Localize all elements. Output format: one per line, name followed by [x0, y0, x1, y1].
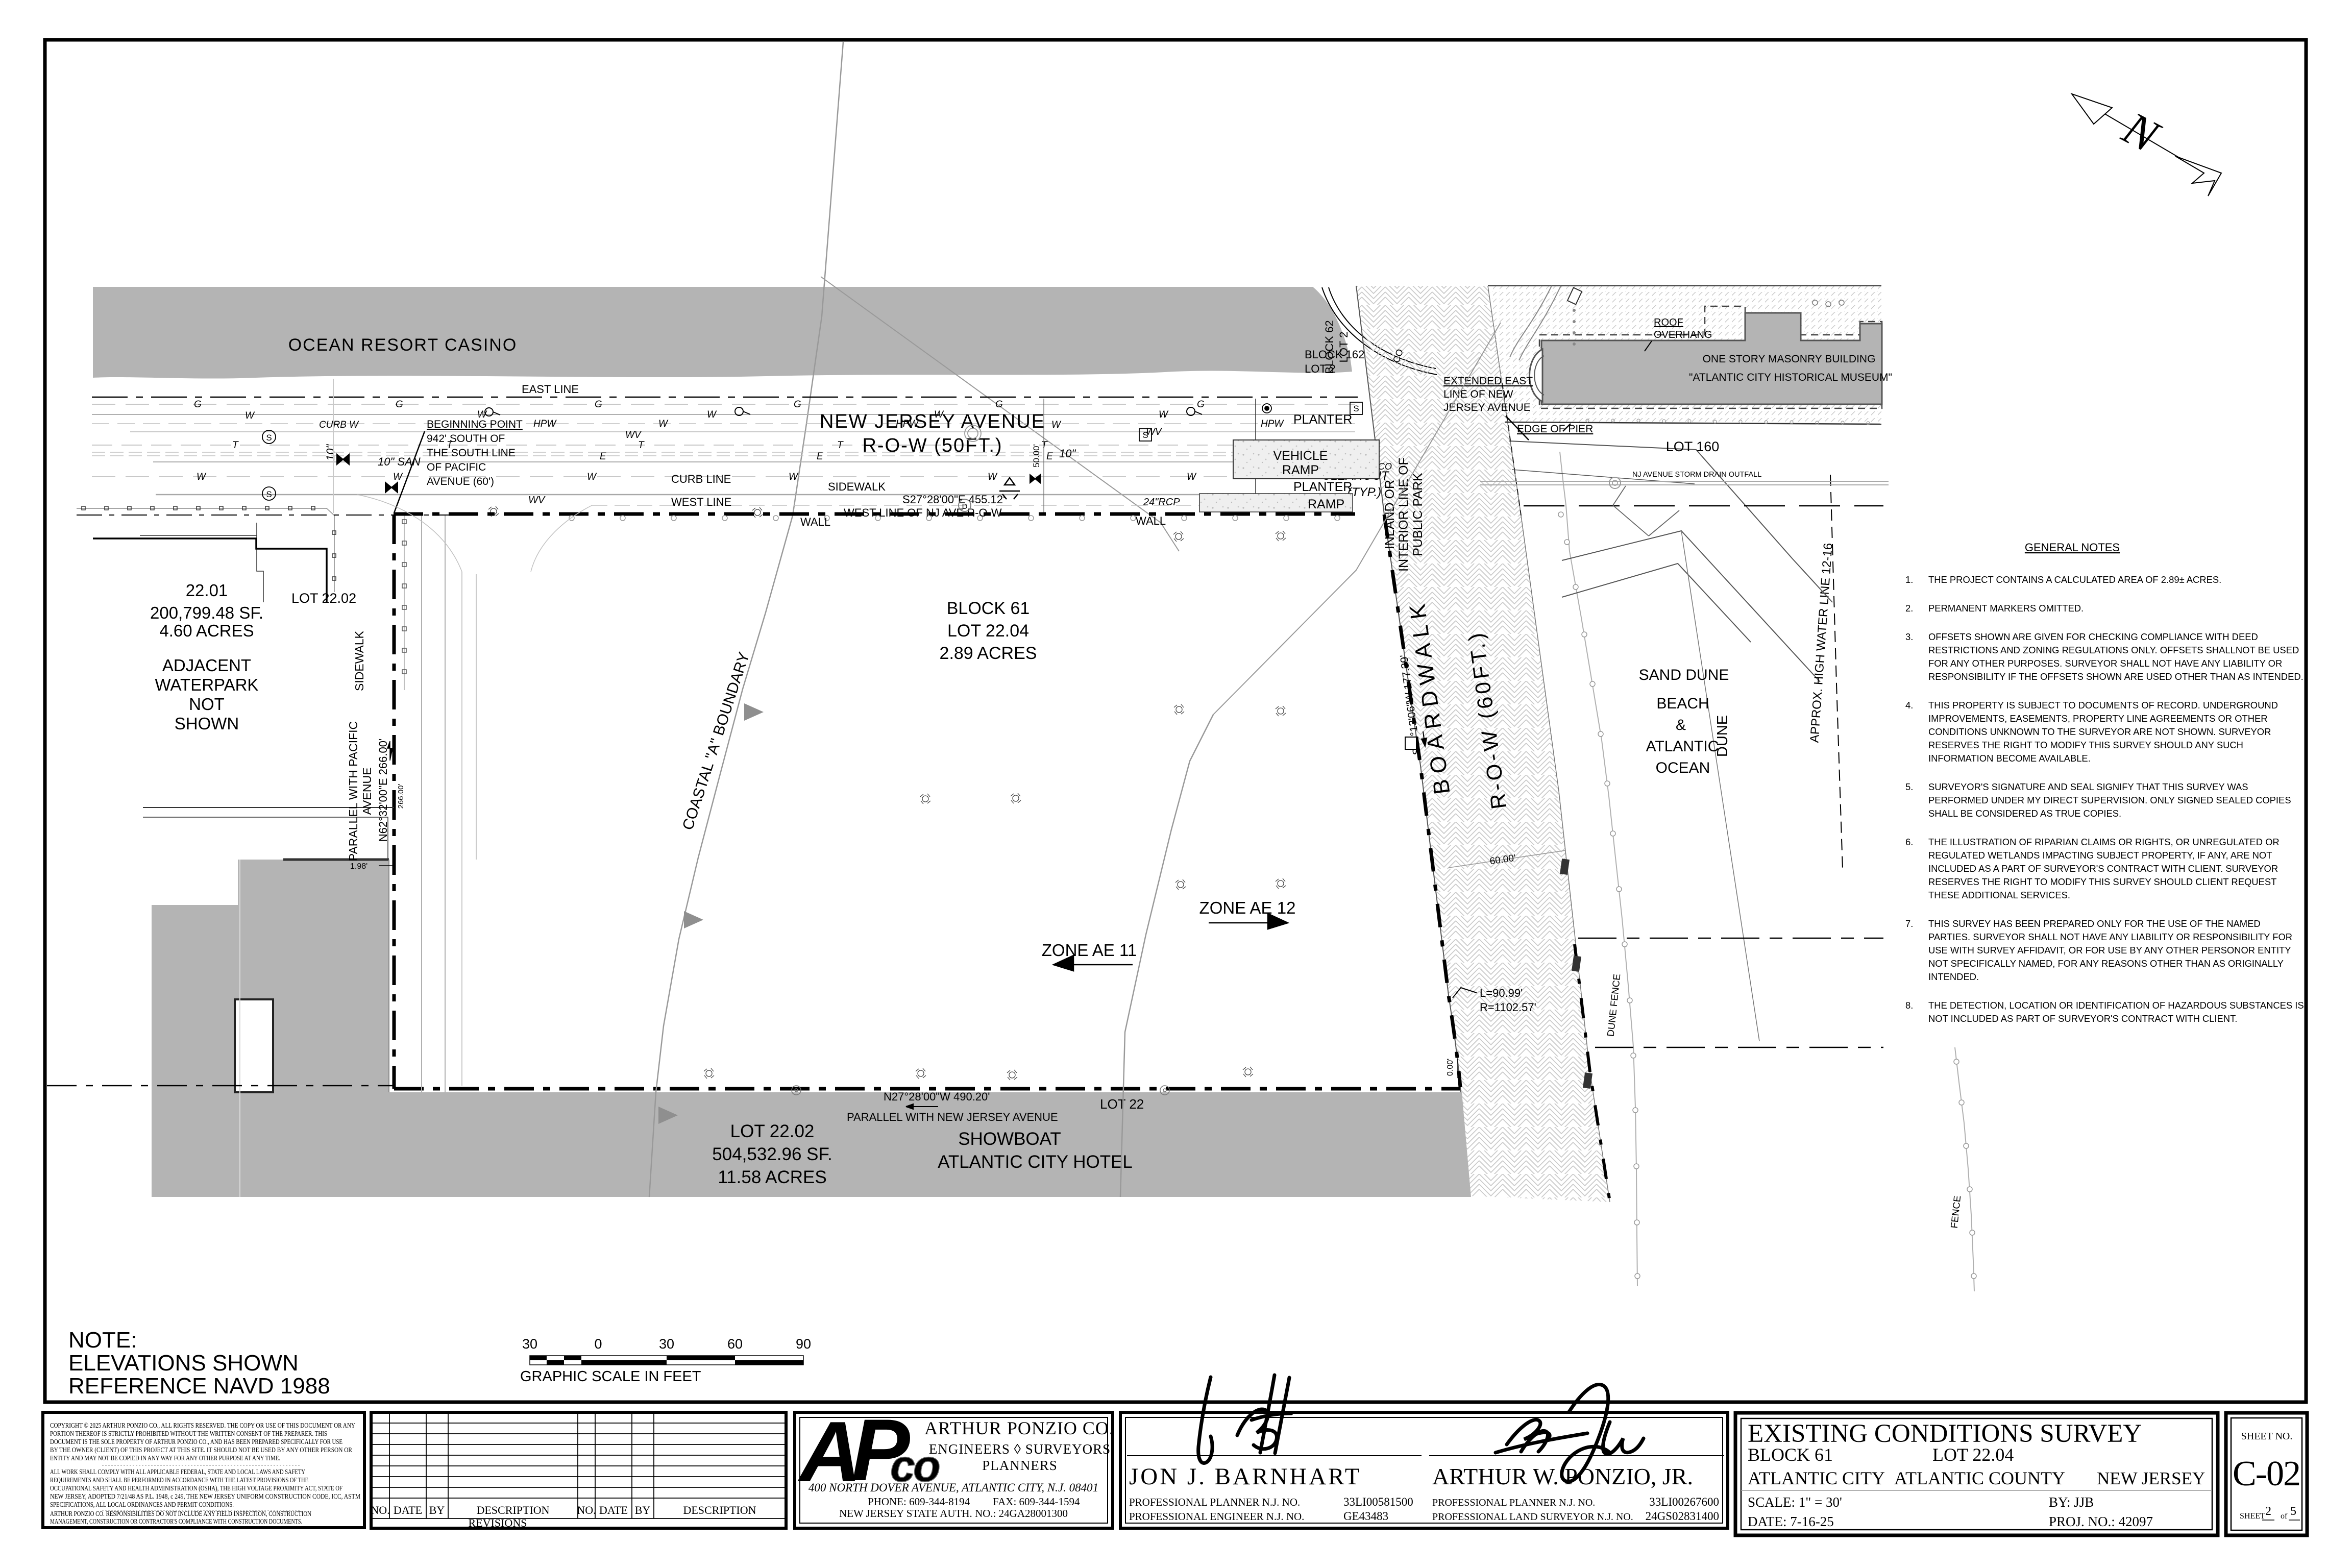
svg-text:NEW JERSEY AVENUE: NEW JERSEY AVENUE: [820, 411, 1045, 432]
svg-text:ZONE AE 12: ZONE AE 12: [1199, 898, 1296, 917]
svg-text:SHEET NO.: SHEET NO.: [2241, 1431, 2293, 1442]
svg-text:PROFESSIONAL ENGINEER N.J. NO.: PROFESSIONAL ENGINEER N.J. NO.: [1129, 1510, 1304, 1523]
svg-text:942' SOUTH OF: 942' SOUTH OF: [427, 433, 505, 445]
svg-text:NEW JERSEY, ADOPTED 7/21/48 AS: NEW JERSEY, ADOPTED 7/21/48 AS P.L. 1948…: [50, 1492, 360, 1500]
svg-text:OCEAN RESORT CASINO: OCEAN RESORT CASINO: [288, 335, 518, 355]
svg-text:FAX: 609-344-1594: FAX: 609-344-1594: [993, 1496, 1080, 1508]
svg-text:NOT: NOT: [189, 695, 225, 714]
svg-text:10": 10": [324, 444, 337, 461]
svg-text:8.: 8.: [1905, 1000, 1913, 1011]
svg-text:W: W: [1187, 472, 1197, 482]
svg-text:400 NORTH DOVER AVENUE, ATLANT: 400 NORTH DOVER AVENUE, ATLANTIC CITY, N…: [808, 1481, 1098, 1494]
svg-text:VEHICLE: VEHICLE: [1273, 449, 1328, 463]
svg-text:FOR ANY OTHER PURPOSES. SURVEY: FOR ANY OTHER PURPOSES. SURVEYOR SHALL N…: [1928, 658, 2282, 669]
svg-text:ENTITY AND MAY NOT BE COPIED I: ENTITY AND MAY NOT BE COPIED IN ANY WAY …: [50, 1454, 280, 1462]
svg-text:7.: 7.: [1905, 918, 1913, 929]
svg-text:CURB LINE: CURB LINE: [671, 473, 731, 485]
svg-text:2.89 ACRES: 2.89 ACRES: [940, 644, 1037, 663]
svg-text:PORTION THEREOF IS STRICTLY PR: PORTION THEREOF IS STRICTLY PROHIBITED W…: [50, 1430, 327, 1437]
svg-text:CO: CO: [1378, 461, 1392, 472]
svg-text:4.60 ACRES: 4.60 ACRES: [159, 621, 254, 640]
svg-text:GENERAL NOTES: GENERAL NOTES: [2025, 541, 2120, 554]
svg-text:PROJ. NO.: 42097: PROJ. NO.: 42097: [2049, 1514, 2153, 1529]
svg-text:PUBLIC PARK: PUBLIC PARK: [1411, 473, 1425, 556]
svg-text:PROFESSIONAL PLANNER N.J. NO.: PROFESSIONAL PLANNER N.J. NO.: [1129, 1496, 1300, 1508]
svg-text:30: 30: [659, 1336, 674, 1352]
svg-text:10" SAN: 10" SAN: [378, 455, 421, 468]
svg-text:BY: BY: [429, 1504, 445, 1516]
svg-text:JON J. BARNHART: JON J. BARNHART: [1129, 1463, 1361, 1490]
svg-text:SHOWN: SHOWN: [175, 714, 239, 733]
svg-text:WALL: WALL: [800, 516, 830, 528]
svg-text:T: T: [232, 440, 239, 451]
svg-text:"ATLANTIC CITY HISTORICAL MUSE: "ATLANTIC CITY HISTORICAL MUSEUM": [1689, 372, 1892, 383]
svg-text:G: G: [194, 399, 202, 410]
svg-text:HPW: HPW: [533, 419, 557, 429]
svg-text:S27°28'00"E 455.12': S27°28'00"E 455.12': [902, 493, 1005, 506]
svg-text:THE PROJECT CONTAINS A CALCUL: THE PROJECT CONTAINS A CALCULATED AREA O…: [1928, 574, 2221, 585]
svg-text:OFFSETS SHOWN ARE GIVEN FOR CH: OFFSETS SHOWN ARE GIVEN FOR CHECKING COM…: [1928, 631, 2258, 642]
svg-text:DESCRIPTION: DESCRIPTION: [683, 1504, 756, 1516]
svg-text:10": 10": [1059, 447, 1076, 460]
svg-text:SCALE: 1" = 30': SCALE: 1" = 30': [1748, 1494, 1842, 1510]
svg-text:W: W: [587, 472, 597, 482]
svg-text:30: 30: [522, 1336, 537, 1352]
svg-text:W: W: [197, 472, 207, 482]
svg-text:ARTHUR W. PONZIO, JR.: ARTHUR W. PONZIO, JR.: [1432, 1463, 1693, 1489]
svg-text:S: S: [266, 433, 272, 443]
svg-text:RAMP: RAMP: [1282, 463, 1319, 477]
svg-text:E: E: [817, 451, 823, 462]
svg-text:RESERVES THE RIGHT TO MODIFY T: RESERVES THE RIGHT TO MODIFY THIS SURVEY…: [1928, 740, 2243, 750]
svg-text:ROOF: ROOF: [1654, 317, 1683, 328]
svg-text:ALL WORK SHALL COMPLY WITH ALL: ALL WORK SHALL COMPLY WITH ALL APPLICABL…: [50, 1468, 305, 1476]
svg-text:GE43483: GE43483: [1343, 1510, 1388, 1523]
svg-text:NO.: NO.: [371, 1504, 389, 1516]
svg-text:BY: JJB: BY: JJB: [2049, 1494, 2094, 1510]
svg-text:ENGINEERS ◊ SURVEYORS: ENGINEERS ◊ SURVEYORS: [929, 1441, 1111, 1457]
svg-text:NEW JERSEY STATE AUTH. NO.: 2: NEW JERSEY STATE AUTH. NO.: 24GA28001300: [839, 1507, 1068, 1520]
svg-text:PLANNERS: PLANNERS: [982, 1458, 1058, 1473]
svg-text:CONDITIONS UNKNOWN TO THE SURV: CONDITIONS UNKNOWN TO THE SURVEYOR ARE N…: [1928, 726, 2271, 737]
svg-text:SHEET: SHEET: [2240, 1512, 2265, 1521]
svg-text:N62°32'00"E 266.00': N62°32'00"E 266.00': [377, 739, 389, 842]
svg-text:DATE: DATE: [394, 1504, 422, 1516]
svg-text:INTERIOR LINE OF: INTERIOR LINE OF: [1396, 457, 1411, 572]
svg-text:EXISTING CONDITIONS SURVEY: EXISTING CONDITIONS SURVEY: [1748, 1419, 2142, 1448]
svg-text:NO.: NO.: [577, 1504, 596, 1516]
svg-text:AVENUE: AVENUE: [360, 768, 374, 815]
svg-text:S: S: [266, 489, 272, 499]
svg-text:IMPROVEMENTS, EASEMENTS, PROPE: IMPROVEMENTS, EASEMENTS, PROPERTY LINE A…: [1928, 713, 2268, 724]
svg-text:3.: 3.: [1905, 631, 1913, 642]
svg-text:THIS PROPERTY IS SUBJECT TO DO: THIS PROPERTY IS SUBJECT TO DOCUMENTS OF…: [1928, 700, 2278, 710]
svg-text:2.: 2.: [1905, 603, 1913, 614]
svg-text:RAMP: RAMP: [1308, 497, 1344, 511]
svg-text:INLAND OR: INLAND OR: [1383, 480, 1397, 549]
svg-text:R=1102.57': R=1102.57': [1480, 1001, 1536, 1014]
svg-text:W: W: [789, 472, 799, 482]
svg-text:WV: WV: [528, 495, 546, 506]
svg-text:LOT 160: LOT 160: [1666, 439, 1720, 454]
svg-text:ADJACENT: ADJACENT: [162, 656, 251, 675]
svg-text:THE DETECTION, LOCATION OR IDE: THE DETECTION, LOCATION OR IDENTIFICATIO…: [1928, 1000, 2304, 1011]
svg-text:PARALLEL WITH PACIFIC: PARALLEL WITH PACIFIC: [347, 721, 360, 861]
svg-text:BEACH: BEACH: [1656, 695, 1709, 712]
svg-text:G: G: [595, 399, 602, 410]
svg-text:BLOCK 162: BLOCK 162: [1305, 348, 1364, 361]
svg-text:LOT 22: LOT 22: [1100, 1096, 1144, 1112]
svg-text:0: 0: [594, 1336, 602, 1352]
svg-text:PHONE: 609-344-8194: PHONE: 609-344-8194: [868, 1496, 970, 1508]
svg-text:E: E: [1046, 451, 1053, 462]
svg-text:60: 60: [727, 1336, 743, 1352]
svg-text:USE WITH SURVEY AFFIDAVIT, OR: USE WITH SURVEY AFFIDAVIT, OR FOR USE BY…: [1928, 945, 2291, 955]
svg-text:22.01: 22.01: [186, 581, 228, 600]
svg-text:T: T: [638, 440, 645, 451]
svg-text:5: 5: [2290, 1505, 2296, 1518]
svg-text:ELEVATIONS SHOWN: ELEVATIONS SHOWN: [68, 1351, 299, 1376]
svg-text:0.00': 0.00': [1446, 1059, 1455, 1076]
svg-text:AVENUE (60'): AVENUE (60'): [427, 476, 494, 487]
svg-text:OF PACIFIC: OF PACIFIC: [427, 461, 486, 473]
svg-text:ARTHUR PONZIO CO. RESPONSIBILI: ARTHUR PONZIO CO. RESPONSIBILITIES DO NO…: [50, 1510, 311, 1517]
svg-text:R-O-W (50FT.): R-O-W (50FT.): [862, 435, 1002, 456]
svg-text:G: G: [396, 399, 403, 410]
svg-text:ATLANTIC COUNTY: ATLANTIC COUNTY: [1894, 1468, 2065, 1488]
svg-text:T: T: [837, 440, 844, 451]
svg-text:D: D: [962, 502, 968, 511]
svg-text:W: W: [988, 472, 998, 482]
svg-text:SIDEWALK: SIDEWALK: [828, 480, 886, 493]
svg-text:LOT 22.02: LOT 22.02: [291, 591, 356, 606]
svg-text:90: 90: [796, 1336, 811, 1352]
svg-text:G: G: [1197, 399, 1205, 410]
svg-text:DATE: 7-16-25: DATE: 7-16-25: [1748, 1514, 1834, 1529]
svg-text:L=90.99': L=90.99': [1480, 987, 1523, 999]
svg-text:PLANTER: PLANTER: [1293, 480, 1352, 494]
svg-text:WEST LINE: WEST LINE: [671, 496, 731, 508]
svg-text:504,532.96 SF.: 504,532.96 SF.: [712, 1144, 832, 1164]
svg-text:of: of: [2281, 1512, 2288, 1521]
svg-text:W: W: [707, 409, 717, 420]
svg-text:ATLANTIC: ATLANTIC: [1646, 738, 1719, 755]
svg-text:LINE OF NEW: LINE OF NEW: [1443, 388, 1513, 400]
svg-text:THESE ADDITIONAL SERVICES.: THESE ADDITIONAL SERVICES.: [1928, 890, 2070, 900]
svg-text:NJ AVENUE STORM DRAIN OUTFALL: NJ AVENUE STORM DRAIN OUTFALL: [1632, 471, 1761, 479]
svg-text:NEW JERSEY: NEW JERSEY: [2097, 1468, 2205, 1488]
svg-text:ARTHUR PONZIO CO.: ARTHUR PONZIO CO.: [924, 1418, 1114, 1438]
svg-text:2: 2: [2265, 1505, 2271, 1518]
svg-text:W: W: [658, 419, 669, 429]
svg-text:1.: 1.: [1905, 574, 1913, 585]
svg-text:PERMANENT MARKERS OMITTED.: PERMANENT MARKERS OMITTED.: [1928, 603, 2084, 614]
svg-text:ZONE AE 11: ZONE AE 11: [1042, 941, 1137, 960]
svg-text:WALL: WALL: [1136, 514, 1166, 527]
svg-text:G: G: [995, 399, 1003, 410]
svg-text:ATLANTIC CITY: ATLANTIC CITY: [1748, 1468, 1885, 1488]
svg-text:PROFESSIONAL PLANNER N.J. NO.: PROFESSIONAL PLANNER N.J. NO.: [1432, 1497, 1595, 1508]
svg-text:SURVEYOR'S SIGNATURE AND SEAL: SURVEYOR'S SIGNATURE AND SEAL SIGNIFY TH…: [1928, 781, 2248, 792]
svg-text:COPYRIGHT © 2025 ARTHUR PONZI: COPYRIGHT © 2025 ARTHUR PONZIO CO., ALL …: [50, 1422, 355, 1429]
svg-text:INCLUDED AS A PART OF SURVEYOR: INCLUDED AS A PART OF SURVEYOR'S CONTRAC…: [1928, 863, 2278, 874]
svg-text:HPW: HPW: [1261, 419, 1284, 429]
svg-text:&: &: [1676, 717, 1686, 733]
svg-text:JERSEY AVENUE: JERSEY AVENUE: [1443, 402, 1531, 413]
svg-text:4.: 4.: [1905, 700, 1913, 710]
svg-text:GRAPHIC SCALE IN FEET: GRAPHIC SCALE IN FEET: [520, 1368, 701, 1385]
svg-text:LOT 2: LOT 2: [1305, 362, 1336, 375]
svg-text:OVERHANG: OVERHANG: [1654, 329, 1712, 340]
svg-text:NOT SPECIFICALLY NAMED, FOR AN: NOT SPECIFICALLY NAMED, FOR ANY REASONS …: [1928, 958, 2284, 969]
svg-text:SHALL BE CONSIDERED AS TRUE CO: SHALL BE CONSIDERED AS TRUE COPIES.: [1928, 808, 2121, 819]
svg-text:DOCUMENT IS THE SOLE PROPERTY: DOCUMENT IS THE SOLE PROPERTY OF ARTHUR …: [50, 1438, 342, 1445]
svg-text:C-02: C-02: [2233, 1454, 2300, 1493]
svg-text:BEGINNING POINT: BEGINNING POINT: [427, 419, 523, 430]
svg-text:SHOWBOAT: SHOWBOAT: [958, 1129, 1061, 1149]
svg-text:OCEAN: OCEAN: [1656, 759, 1710, 776]
svg-text:MANAGEMENT, CONSTRUCTION OR C: MANAGEMENT, CONSTRUCTION OR CONTRACTOR'S…: [50, 1517, 302, 1525]
svg-text:DESCRIPTION: DESCRIPTION: [476, 1504, 549, 1516]
svg-text:W: W: [393, 472, 403, 482]
svg-text:BLOCK 61: BLOCK 61: [947, 599, 1030, 618]
svg-text:EXTENDED EAST: EXTENDED EAST: [1443, 375, 1533, 387]
svg-text:N27°28'00"W 490.20': N27°28'00"W 490.20': [884, 1090, 990, 1103]
svg-text:NOTE:: NOTE:: [68, 1328, 137, 1353]
svg-text:W: W: [1159, 409, 1169, 420]
svg-text:THIS SURVEY HAS BEEN PREPARED: THIS SURVEY HAS BEEN PREPARED ONLY FOR T…: [1928, 918, 2261, 929]
svg-text:LOT 22.04: LOT 22.04: [1932, 1444, 2014, 1465]
svg-text:PERFORMED UNDER MY DIRECT SUPE: PERFORMED UNDER MY DIRECT SUPERVISION. O…: [1928, 795, 2291, 805]
svg-text:WEST LINE OF NJ AVE R-O-W: WEST LINE OF NJ AVE R-O-W: [844, 506, 1002, 519]
svg-text:NOT INCLUDED AS PART OF SURVEY: NOT INCLUDED AS PART OF SURVEYOR'S CONTR…: [1928, 1013, 2237, 1024]
svg-text:REFERENCE NAVD 1988: REFERENCE NAVD 1988: [68, 1374, 330, 1399]
svg-text:PLANTER: PLANTER: [1293, 412, 1352, 427]
svg-text:50.00': 50.00': [1032, 444, 1041, 468]
svg-text:PARTIES. SURVEYOR SHALL NOT HA: PARTIES. SURVEYOR SHALL NOT HAVE ANY LIA…: [1928, 932, 2292, 942]
svg-text:BY THE OWNER (CLIENT) OF THIS: BY THE OWNER (CLIENT) OF THIS PROJECT AT…: [50, 1446, 352, 1454]
svg-text:T: T: [1041, 440, 1048, 451]
svg-text:LOT 22.04: LOT 22.04: [947, 621, 1029, 641]
svg-text:6.: 6.: [1905, 837, 1913, 847]
svg-text:ONE STORY MASONRY BUILDING: ONE STORY MASONRY BUILDING: [1703, 353, 1876, 365]
svg-text:W: W: [1051, 420, 1062, 430]
svg-text:DATE: DATE: [599, 1504, 628, 1516]
svg-text:SIDEWALK: SIDEWALK: [353, 630, 366, 691]
svg-text:RESTRICTIONS AND ZONING REGULA: RESTRICTIONS AND ZONING REGULATIONS ONLY…: [1928, 645, 2299, 655]
svg-text:REVISIONS: REVISIONS: [469, 1516, 527, 1529]
svg-text:INFORMATION BECOME AVAILABLE.: INFORMATION BECOME AVAILABLE.: [1928, 753, 2091, 764]
svg-text:SPECIFICATIONS, ALL LOCAL ORDI: SPECIFICATIONS, ALL LOCAL ORDINANCES AND…: [50, 1501, 234, 1508]
svg-text:RESPONSIBILITY IF THE OFFSETS: RESPONSIBILITY IF THE OFFSETS SHOWN ARE …: [1928, 671, 2304, 682]
svg-text:24"RCP: 24"RCP: [1143, 497, 1180, 508]
svg-text:33LI00267600: 33LI00267600: [1649, 1496, 1719, 1508]
svg-text:REQUIREMENTS AND SHALL BE PERF: REQUIREMENTS AND SHALL BE PERFORMED IN A…: [50, 1476, 308, 1484]
svg-text:LOT 22.02: LOT 22.02: [730, 1121, 815, 1141]
svg-text:E: E: [600, 451, 606, 462]
svg-text:SAND DUNE: SAND DUNE: [1639, 667, 1729, 683]
svg-text:EDGE OF PIER: EDGE OF PIER: [1517, 423, 1593, 435]
svg-text:W: W: [245, 410, 255, 421]
svg-text:33LI00581500: 33LI00581500: [1343, 1496, 1413, 1508]
svg-text:266.00': 266.00': [397, 783, 405, 808]
svg-text:DUNE: DUNE: [1714, 715, 1731, 757]
svg-text:24GS02831400: 24GS02831400: [1646, 1510, 1719, 1523]
svg-text:PROFESSIONAL LAND SURVEYOR N.J: PROFESSIONAL LAND SURVEYOR N.J. NO.: [1432, 1511, 1633, 1523]
svg-text:EAST LINE: EAST LINE: [522, 383, 579, 396]
svg-text:5.: 5.: [1905, 781, 1913, 792]
svg-text:BY: BY: [635, 1504, 651, 1516]
svg-text:OCCUPATIONAL SAFETY AND HEALTH: OCCUPATIONAL SAFETY AND HEALTH ADMINISTR…: [50, 1484, 342, 1492]
svg-text:WATERPARK: WATERPARK: [155, 675, 259, 694]
svg-text:THE ILLUSTRATION OF RIPARIAN C: THE ILLUSTRATION OF RIPARIAN CLAIMS OR R…: [1928, 837, 2280, 847]
svg-text:S: S: [1142, 430, 1148, 440]
svg-text:WV: WV: [625, 430, 642, 440]
svg-text:INTENDED.: INTENDED.: [1928, 971, 1979, 982]
svg-text:G: G: [794, 399, 801, 410]
svg-text:ATLANTIC CITY HOTEL: ATLANTIC CITY HOTEL: [938, 1152, 1133, 1172]
svg-text:PARALLEL WITH NEW JERSEY AVENU: PARALLEL WITH NEW JERSEY AVENUE: [847, 1111, 1058, 1123]
svg-text:CURB W: CURB W: [319, 420, 359, 430]
svg-text:S: S: [1353, 404, 1359, 413]
svg-text:REGULATED WETLANDS IMPACTING: REGULATED WETLANDS IMPACTING SUBJECT PRO…: [1928, 850, 2272, 861]
svg-text:THE SOUTH LINE: THE SOUTH LINE: [427, 447, 516, 459]
svg-text:BLOCK 61: BLOCK 61: [1748, 1444, 1833, 1465]
svg-text:200,799.48 SF.: 200,799.48 SF.: [150, 603, 263, 622]
svg-text:11.58 ACRES: 11.58 ACRES: [718, 1167, 826, 1187]
svg-text:RESERVES THE RIGHT TO MODIFY T: RESERVES THE RIGHT TO MODIFY THIS SURVEY…: [1928, 876, 2276, 887]
svg-text:1.98': 1.98': [350, 862, 367, 871]
